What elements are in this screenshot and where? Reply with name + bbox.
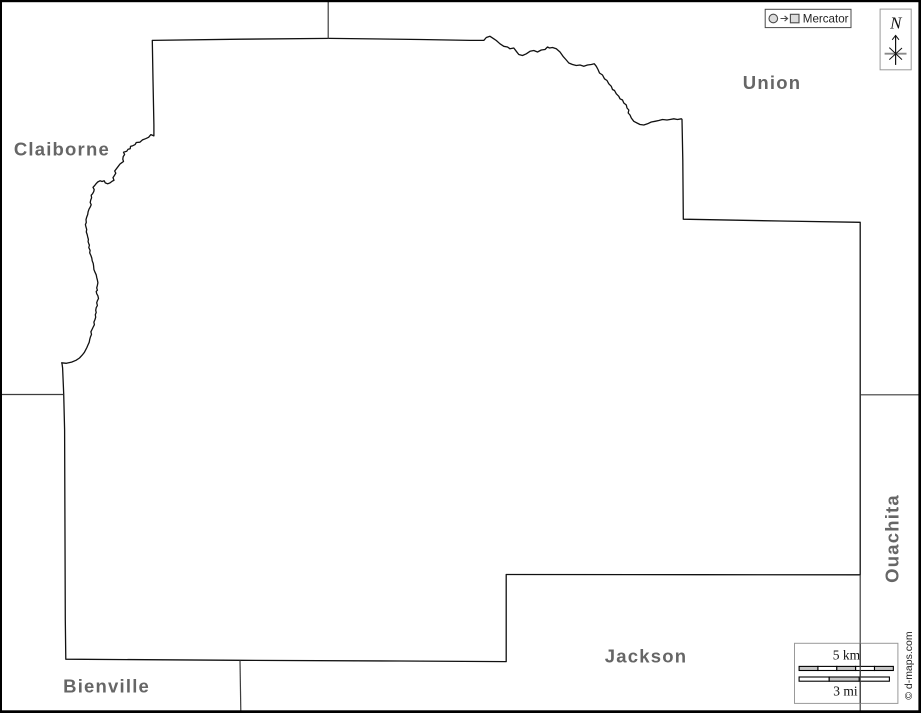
svg-text:Jackson: Jackson	[605, 645, 687, 666]
svg-text:© d-maps.com: © d-maps.com	[903, 631, 915, 700]
svg-text:Claiborne: Claiborne	[14, 139, 110, 160]
svg-text:Mercator: Mercator	[803, 13, 849, 26]
svg-text:3 mi: 3 mi	[833, 684, 858, 699]
svg-text:N: N	[889, 14, 903, 33]
svg-text:Ouachita: Ouachita	[881, 494, 902, 583]
svg-text:Union: Union	[743, 72, 801, 93]
svg-text:Bienville: Bienville	[63, 676, 150, 697]
svg-text:5 km: 5 km	[833, 648, 861, 663]
